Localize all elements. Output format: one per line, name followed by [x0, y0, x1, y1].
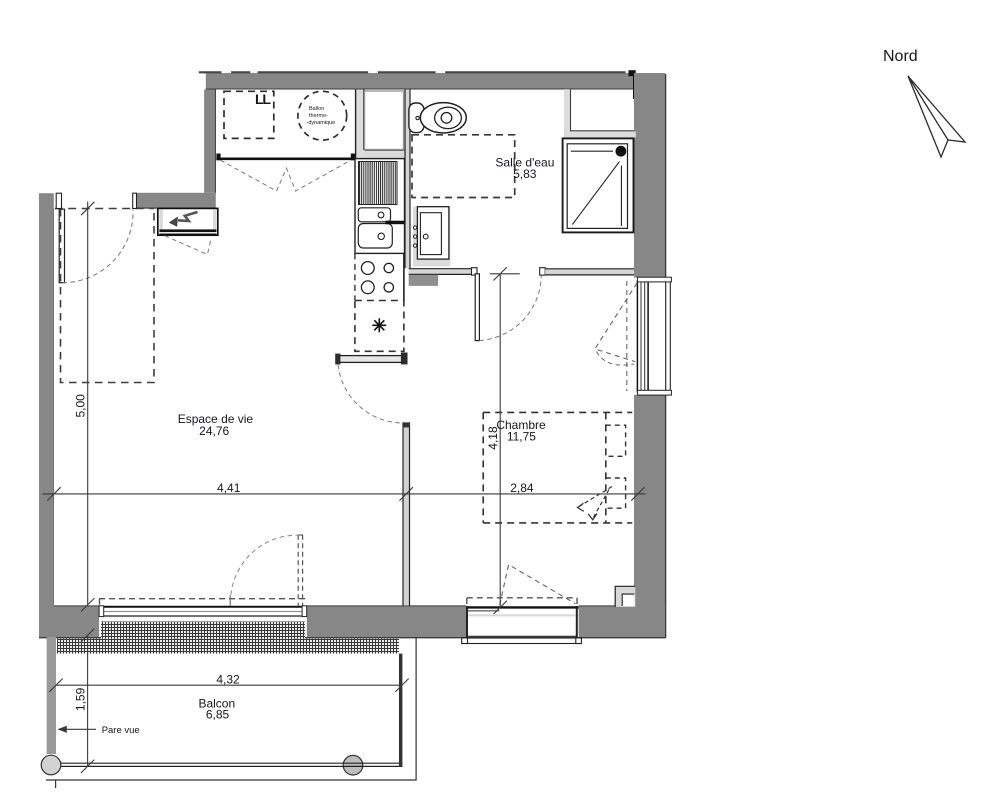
svg-text:Ballon: Ballon [309, 106, 324, 112]
svg-text:24,76: 24,76 [199, 424, 229, 438]
svg-text:2,84: 2,84 [510, 481, 534, 495]
svg-text:Pare vue: Pare vue [102, 725, 140, 736]
svg-text:LL: LL [255, 91, 271, 107]
svg-text:4,32: 4,32 [216, 672, 240, 686]
svg-text:5,00: 5,00 [74, 394, 88, 418]
svg-text:-dynamique: -dynamique [307, 120, 336, 126]
svg-text:11,75: 11,75 [507, 429, 536, 443]
svg-text:thermo-: thermo- [309, 113, 328, 119]
svg-text:5,83: 5,83 [513, 167, 537, 181]
svg-text:6,85: 6,85 [206, 707, 230, 721]
svg-text:4,41: 4,41 [217, 481, 241, 495]
svg-text:1,59: 1,59 [73, 687, 87, 711]
svg-text:Nord: Nord [883, 48, 918, 65]
